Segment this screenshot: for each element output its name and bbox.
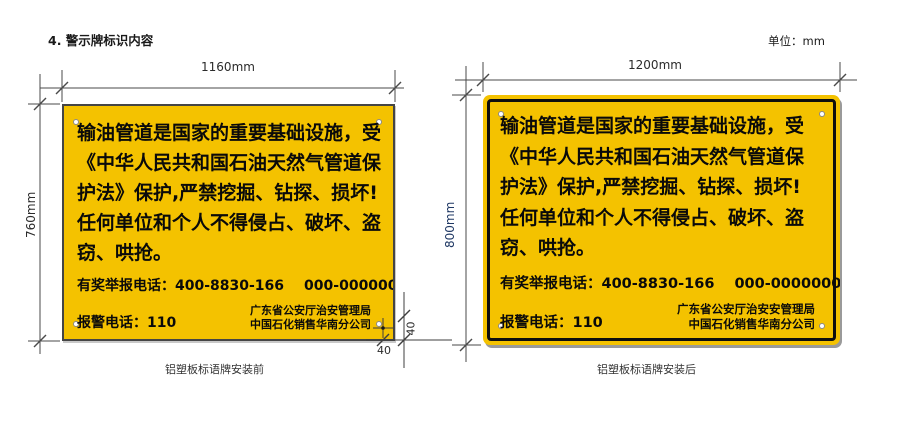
caption-after-install: 铝塑板标语牌安装后	[597, 361, 696, 377]
sign-text-line: 护法》保护,严禁挖掘、钻探、损坏!	[77, 178, 385, 208]
dim-width-before: 1160mm	[193, 60, 263, 74]
sign-text-line: 输油管道是国家的重要基础设施，受	[77, 118, 385, 148]
police-phone: 报警电话：110	[77, 312, 176, 332]
reward-hotline-alt-number: 000-000000	[304, 278, 395, 294]
dim-height-before: 760mm	[24, 192, 38, 238]
reward-hotline: 有奖举报电话：400-8830-166000-000000	[77, 275, 385, 295]
sign-text-line: 窃、哄抢。	[500, 233, 827, 264]
warning-sign-before: 输油管道是国家的重要基础设施，受 《中华人民共和国石油天然气管道保 护法》保护,…	[62, 104, 395, 341]
spec-sheet-page: { "page": { "title": "4. 警示牌标识内容", "unit…	[0, 0, 897, 438]
sign-text-line: 窃、哄抢。	[77, 238, 385, 268]
sign-content: 输油管道是国家的重要基础设施，受 《中华人民共和国石油天然气管道保 护法》保护,…	[77, 118, 385, 332]
sign-text-line: 《中华人民共和国石油天然气管道保	[77, 148, 385, 178]
org-line-1: 广东省公安厅治安管理局	[250, 304, 371, 318]
org-line-2: 中国石化销售华南分公司	[250, 318, 371, 332]
issuing-orgs: 广东省公安厅治安安管理局 中国石化销售华南分公司	[677, 302, 827, 332]
dim-hole-offset-x: 40	[377, 344, 391, 357]
reward-hotline-alt-number: 000-0000000	[734, 276, 840, 292]
dim-width-after: 1200mm	[620, 58, 690, 72]
sign-black-frame: 输油管道是国家的重要基础设施，受 《中华人民共和国石油天然气管道保 护法》保护,…	[487, 99, 836, 341]
warning-sign-after: 输油管道是国家的重要基础设施，受 《中华人民共和国石油天然气管道保 护法》保护,…	[483, 95, 840, 345]
unit-note: 单位：mm	[768, 33, 825, 49]
police-phone: 报警电话：110	[500, 311, 603, 332]
sign-text-line: 护法》保护,严禁挖掘、钻探、损坏!	[500, 172, 827, 203]
sign-text-line: 《中华人民共和国石油天然气管道保	[500, 142, 827, 173]
reward-hotline-number: 有奖举报电话：400-8830-166	[500, 276, 714, 292]
issuing-orgs: 广东省公安厅治安管理局 中国石化销售华南分公司	[250, 304, 385, 332]
reward-hotline-number: 有奖举报电话：400-8830-166	[77, 278, 284, 294]
dim-height-after: 800mm	[443, 202, 457, 248]
reward-hotline: 有奖举报电话：400-8830-166000-0000000	[500, 272, 827, 293]
sign-content: 输油管道是国家的重要基础设施，受 《中华人民共和国石油天然气管道保 护法》保护,…	[500, 111, 827, 332]
sign-text-line: 任何单位和个人不得侵占、破坏、盗	[77, 208, 385, 238]
section-title: 4. 警示牌标识内容	[48, 30, 153, 49]
org-line-1: 广东省公安厅治安安管理局	[677, 302, 815, 317]
sign-footer: 报警电话：110 广东省公安厅治安管理局 中国石化销售华南分公司	[77, 304, 385, 332]
sign-text-line: 输油管道是国家的重要基础设施，受	[500, 111, 827, 142]
caption-before-install: 铝塑板标语牌安装前	[165, 361, 264, 377]
sign-text-line: 任何单位和个人不得侵占、破坏、盗	[500, 203, 827, 234]
org-line-2: 中国石化销售华南分公司	[677, 317, 815, 332]
dim-hole-offset-y: 40	[405, 310, 418, 336]
sign-footer: 报警电话：110 广东省公安厅治安安管理局 中国石化销售华南分公司	[500, 302, 827, 332]
